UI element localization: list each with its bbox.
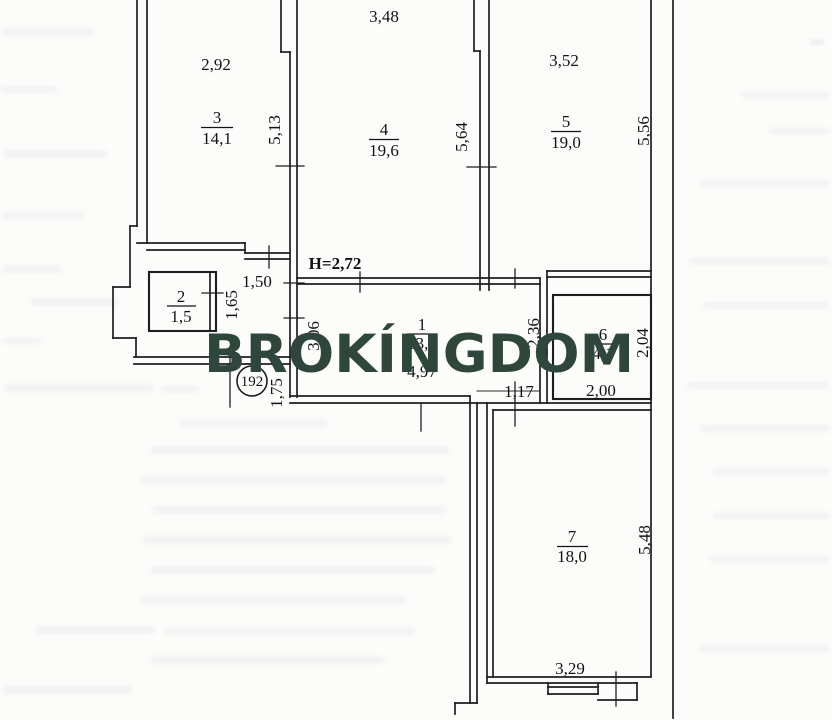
scan-artifact [700, 180, 830, 187]
room-area: 19,6 [369, 141, 399, 160]
room-area: 1,5 [170, 307, 191, 326]
scan-artifact [698, 645, 830, 652]
dim-room6-depth: 2,04 [633, 328, 652, 358]
dim-room4-width: 3,48 [369, 7, 399, 26]
room-4-label: 4 19,6 [369, 120, 399, 160]
dim-room3-width: 2,92 [201, 55, 231, 74]
scan-artifact [35, 626, 155, 634]
scan-artifact [142, 476, 447, 484]
room-number: 3 [213, 108, 222, 127]
room-area: 19,0 [551, 133, 581, 152]
scan-artifact [152, 506, 447, 514]
scan-artifact [0, 86, 58, 93]
dim-room5-width: 3,52 [549, 51, 579, 70]
scan-artifact [688, 258, 830, 265]
scan-artifact [2, 338, 42, 344]
room-7-label: 7 18,0 [557, 527, 588, 566]
scan-artifact [165, 627, 415, 635]
scan-artifact [2, 686, 132, 694]
scan-artifact [810, 40, 824, 44]
scan-artifact [150, 566, 435, 574]
room-number: 2 [177, 287, 186, 306]
dim-room3-depth: 5,13 [265, 115, 284, 145]
room-area: 14,1 [202, 129, 232, 148]
dim-room7-width: 3,29 [555, 659, 585, 678]
scan-artifact [710, 556, 830, 563]
room-5-label: 5 19,0 [551, 112, 581, 152]
room-area: 18,0 [557, 547, 587, 566]
dim-room7-depth: 5,48 [635, 525, 654, 555]
scan-artifact [686, 382, 830, 389]
watermark: BROKÍNGDOM [204, 322, 634, 385]
scan-artifact [160, 386, 200, 393]
floor-plan-drawing: 3,48 2,92 3,52 5,13 5,64 5,56 H=2,72 1,5… [0, 0, 832, 720]
dim-room4-depth: 5,64 [452, 122, 471, 152]
room-2-label: 2 1,5 [167, 287, 196, 326]
room-number: 4 [380, 120, 389, 139]
scan-artifact [2, 266, 62, 273]
dim-room5-depth: 5,56 [634, 116, 653, 146]
scan-artifact [768, 128, 830, 134]
scan-artifact [150, 446, 450, 454]
scan-artifact [712, 512, 830, 519]
scan-artifact [178, 419, 328, 427]
room-number: 5 [562, 112, 571, 131]
scan-artifact [4, 384, 154, 392]
scan-artifact [2, 28, 94, 36]
ceiling-height-label: H=2,72 [309, 254, 362, 273]
scanned-floor-plan-page: 3,48 2,92 3,52 5,13 5,64 5,56 H=2,72 1,5… [0, 0, 832, 720]
scan-artifact [150, 656, 385, 664]
scan-artifact [30, 298, 118, 306]
scan-artifact [142, 536, 452, 544]
dim-hall-opening: 1,50 [242, 272, 272, 291]
scan-artifact [3, 150, 107, 158]
room-3-label: 3 14,1 [201, 108, 233, 148]
scan-artifact [700, 425, 830, 432]
room-number: 7 [568, 527, 577, 546]
dim-closet-depth: 1,65 [222, 290, 241, 320]
scan-artifact [742, 92, 830, 99]
scan-artifact [142, 596, 407, 604]
scan-artifact [702, 302, 830, 309]
scan-artifact [1, 212, 85, 219]
scan-artifact [712, 468, 830, 475]
